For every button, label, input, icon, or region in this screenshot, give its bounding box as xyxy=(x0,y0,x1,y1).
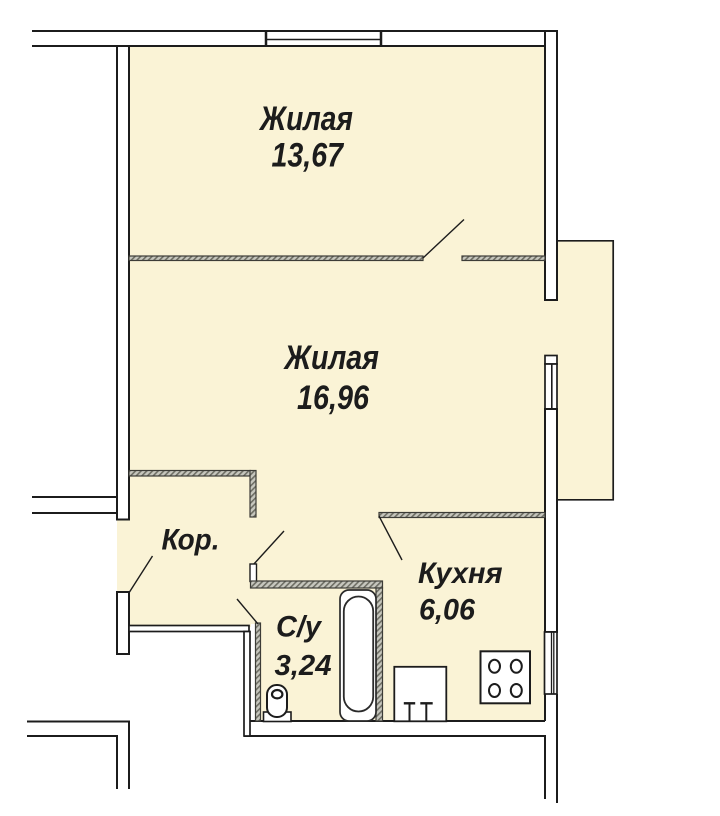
svg-text:3,24: 3,24 xyxy=(275,650,332,682)
svg-text:Кор.: Кор. xyxy=(162,524,220,557)
svg-text:Жилая: Жилая xyxy=(283,339,379,377)
svg-text:6,06: 6,06 xyxy=(419,594,475,627)
svg-text:С/у: С/у xyxy=(276,611,322,644)
svg-text:16,96: 16,96 xyxy=(297,379,370,417)
svg-text:Жилая: Жилая xyxy=(258,100,353,138)
svg-text:Кухня: Кухня xyxy=(418,557,503,590)
svg-text:13,67: 13,67 xyxy=(272,137,345,175)
